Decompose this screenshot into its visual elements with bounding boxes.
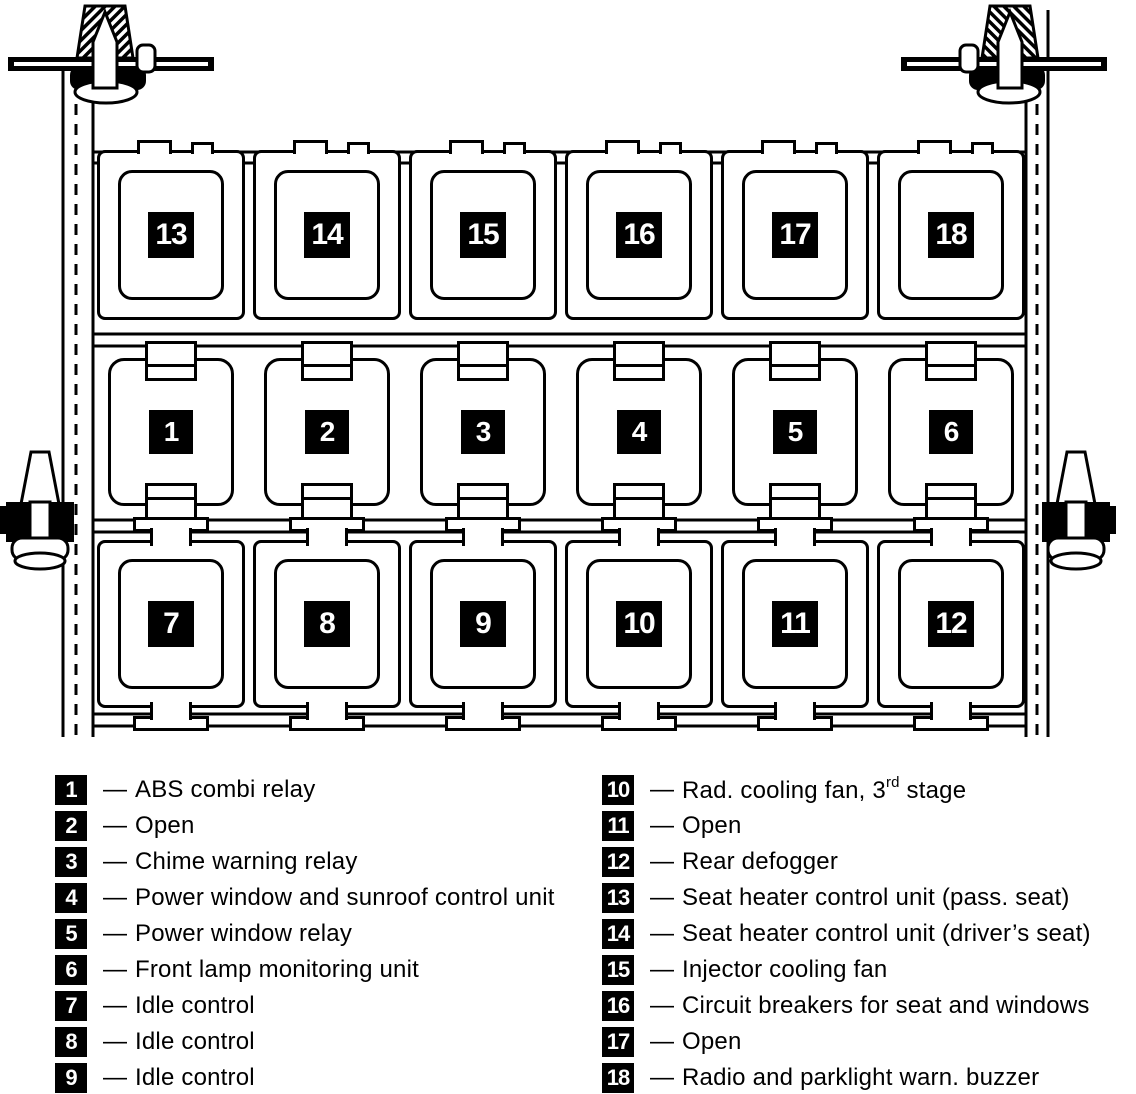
relay-socket-13: 13 xyxy=(97,150,245,320)
legend-dash: — xyxy=(650,812,674,840)
socket-t-tab-icon xyxy=(774,528,816,546)
legend-label: Open xyxy=(682,1028,742,1056)
socket-clip-icon xyxy=(301,341,353,381)
legend-number-badge: 17 xyxy=(602,1027,634,1057)
relay-socket-12: 12 xyxy=(877,540,1025,708)
legend-dash: — xyxy=(650,776,674,804)
legend-item-10: 10—Rad. cooling fan, 3rd stage xyxy=(602,772,1091,808)
socket-number-badge: 14 xyxy=(304,212,350,258)
socket-number-badge: 13 xyxy=(148,212,194,258)
legend-dash: — xyxy=(103,920,127,948)
legend-item-12: 12—Rear defogger xyxy=(602,844,1091,880)
legend-label: Open xyxy=(135,812,195,840)
legend-number-badge: 10 xyxy=(602,775,634,805)
legend-dash: — xyxy=(103,1028,127,1056)
relay-socket-17: 17 xyxy=(721,150,869,320)
socket-t-tab-icon xyxy=(150,528,192,546)
legend-label: Chime warning relay xyxy=(135,848,358,876)
legend-column-left: 1—ABS combi relay2—Open3—Chime warning r… xyxy=(55,772,555,1094)
socket-t-tab-icon xyxy=(930,702,972,720)
legend-dash: — xyxy=(650,992,674,1020)
legend-item-3: 3—Chime warning relay xyxy=(55,844,555,880)
legend-number-badge: 11 xyxy=(602,811,634,841)
socket-clip-icon xyxy=(145,341,197,381)
legend-item-8: 8—Idle control xyxy=(55,1024,555,1060)
legend-number-badge: 15 xyxy=(602,955,634,985)
socket-number-badge: 11 xyxy=(772,601,818,647)
legend-label: Power window relay xyxy=(135,920,352,948)
relay-socket-16: 16 xyxy=(565,150,713,320)
relay-socket-6: 6 xyxy=(888,358,1014,506)
legend-item-13: 13—Seat heater control unit (pass. seat) xyxy=(602,880,1091,916)
relay-socket-18: 18 xyxy=(877,150,1025,320)
legend-label: Power window and sunroof control unit xyxy=(135,884,555,912)
relay-socket-10: 10 xyxy=(565,540,713,708)
legend-item-16: 16—Circuit breakers for seat and windows xyxy=(602,988,1091,1024)
socket-t-tab-icon xyxy=(462,702,504,720)
relay-socket-1: 1 xyxy=(108,358,234,506)
legend-item-1: 1—ABS combi relay xyxy=(55,772,555,808)
legend-item-14: 14—Seat heater control unit (driver’s se… xyxy=(602,916,1091,952)
socket-number-badge: 5 xyxy=(773,410,817,454)
legend-number-badge: 3 xyxy=(55,847,87,877)
legend-number-badge: 18 xyxy=(602,1063,634,1093)
legend-dash: — xyxy=(650,920,674,948)
socket-t-tab-icon xyxy=(150,702,192,720)
socket-clip-icon xyxy=(613,341,665,381)
socket-number-badge: 15 xyxy=(460,212,506,258)
legend-label: Rad. cooling fan, 3rd stage xyxy=(682,776,966,805)
legend-dash: — xyxy=(103,812,127,840)
socket-edge-tab-icon xyxy=(761,140,797,154)
relay-socket-8: 8 xyxy=(253,540,401,708)
legend-dash: — xyxy=(650,884,674,912)
legend-dash: — xyxy=(650,1028,674,1056)
relay-socket-14: 14 xyxy=(253,150,401,320)
legend-number-badge: 1 xyxy=(55,775,87,805)
legend-label: Radio and parklight warn. buzzer xyxy=(682,1064,1039,1092)
legend-item-11: 11—Open xyxy=(602,808,1091,844)
legend-item-5: 5—Power window relay xyxy=(55,916,555,952)
socket-clip-icon xyxy=(457,341,509,381)
legend-item-15: 15—Injector cooling fan xyxy=(602,952,1091,988)
socket-number-badge: 6 xyxy=(929,410,973,454)
legend-dash: — xyxy=(103,884,127,912)
socket-t-tab-icon xyxy=(618,528,660,546)
legend-label: Front lamp monitoring unit xyxy=(135,956,419,984)
socket-t-tab-icon xyxy=(306,702,348,720)
legend-dash: — xyxy=(103,776,127,804)
socket-edge-tab-icon xyxy=(347,142,370,154)
socket-number-badge: 7 xyxy=(148,601,194,647)
legend-label: Injector cooling fan xyxy=(682,956,887,984)
legend-dash: — xyxy=(650,848,674,876)
socket-t-tab-icon xyxy=(774,702,816,720)
socket-number-badge: 16 xyxy=(616,212,662,258)
socket-number-badge: 2 xyxy=(305,410,349,454)
legend-dash: — xyxy=(650,956,674,984)
socket-number-badge: 1 xyxy=(149,410,193,454)
legend-label: Seat heater control unit (pass. seat) xyxy=(682,884,1070,912)
socket-number-badge: 17 xyxy=(772,212,818,258)
legend-label: Idle control xyxy=(135,992,255,1020)
relay-socket-15: 15 xyxy=(409,150,557,320)
socket-edge-tab-icon xyxy=(191,142,214,154)
socket-edge-tab-icon xyxy=(917,140,953,154)
legend-label: ABS combi relay xyxy=(135,776,315,804)
legend-number-badge: 4 xyxy=(55,883,87,913)
legend-item-9: 9—Idle control xyxy=(55,1060,555,1094)
socket-edge-tab-icon xyxy=(971,142,994,154)
legend-label: Rear defogger xyxy=(682,848,838,876)
relay-socket-7: 7 xyxy=(97,540,245,708)
legend-number-badge: 14 xyxy=(602,919,634,949)
socket-clip-icon xyxy=(925,341,977,381)
socket-edge-tab-icon xyxy=(137,140,173,154)
socket-t-tab-icon xyxy=(618,702,660,720)
legend-item-2: 2—Open xyxy=(55,808,555,844)
legend-number-badge: 8 xyxy=(55,1027,87,1057)
relay-socket-4: 4 xyxy=(576,358,702,506)
legend-item-7: 7—Idle control xyxy=(55,988,555,1024)
legend-dash: — xyxy=(650,1064,674,1092)
socket-t-tab-icon xyxy=(930,528,972,546)
legend-number-badge: 6 xyxy=(55,955,87,985)
legend-number-badge: 13 xyxy=(602,883,634,913)
legend-number-badge: 2 xyxy=(55,811,87,841)
relay-panel-diagram: 131415161718123456789101112 1—ABS combi … xyxy=(0,0,1136,1094)
legend-label: Idle control xyxy=(135,1064,255,1092)
legend-label: Open xyxy=(682,812,742,840)
legend-number-badge: 12 xyxy=(602,847,634,877)
socket-number-badge: 4 xyxy=(617,410,661,454)
socket-number-badge: 12 xyxy=(928,601,974,647)
legend-dash: — xyxy=(103,848,127,876)
legend-item-4: 4—Power window and sunroof control unit xyxy=(55,880,555,916)
legend-label: Idle control xyxy=(135,1028,255,1056)
relay-socket-2: 2 xyxy=(264,358,390,506)
legend-column-right: 10—Rad. cooling fan, 3rd stage11—Open12—… xyxy=(602,772,1091,1094)
legend-label: Circuit breakers for seat and windows xyxy=(682,992,1090,1020)
legend-number-badge: 9 xyxy=(55,1063,87,1093)
legend-dash: — xyxy=(103,992,127,1020)
socket-number-badge: 3 xyxy=(461,410,505,454)
relay-socket-3: 3 xyxy=(420,358,546,506)
relay-socket-5: 5 xyxy=(732,358,858,506)
legend-label: Seat heater control unit (driver’s seat) xyxy=(682,920,1091,948)
legend-dash: — xyxy=(103,956,127,984)
legend-number-badge: 16 xyxy=(602,991,634,1021)
socket-edge-tab-icon xyxy=(503,142,526,154)
socket-number-badge: 10 xyxy=(616,601,662,647)
socket-edge-tab-icon xyxy=(659,142,682,154)
socket-number-badge: 18 xyxy=(928,212,974,258)
relay-socket-11: 11 xyxy=(721,540,869,708)
socket-edge-tab-icon xyxy=(605,140,641,154)
legend-item-17: 17—Open xyxy=(602,1024,1091,1060)
socket-edge-tab-icon xyxy=(293,140,329,154)
relay-socket-9: 9 xyxy=(409,540,557,708)
legend-item-18: 18—Radio and parklight warn. buzzer xyxy=(602,1060,1091,1094)
socket-edge-tab-icon xyxy=(815,142,838,154)
legend-number-badge: 5 xyxy=(55,919,87,949)
socket-edge-tab-icon xyxy=(449,140,485,154)
socket-number-badge: 9 xyxy=(460,601,506,647)
socket-clip-icon xyxy=(769,341,821,381)
socket-t-tab-icon xyxy=(462,528,504,546)
socket-t-tab-icon xyxy=(306,528,348,546)
socket-number-badge: 8 xyxy=(304,601,350,647)
legend-number-badge: 7 xyxy=(55,991,87,1021)
legend-item-6: 6—Front lamp monitoring unit xyxy=(55,952,555,988)
legend-dash: — xyxy=(103,1064,127,1092)
